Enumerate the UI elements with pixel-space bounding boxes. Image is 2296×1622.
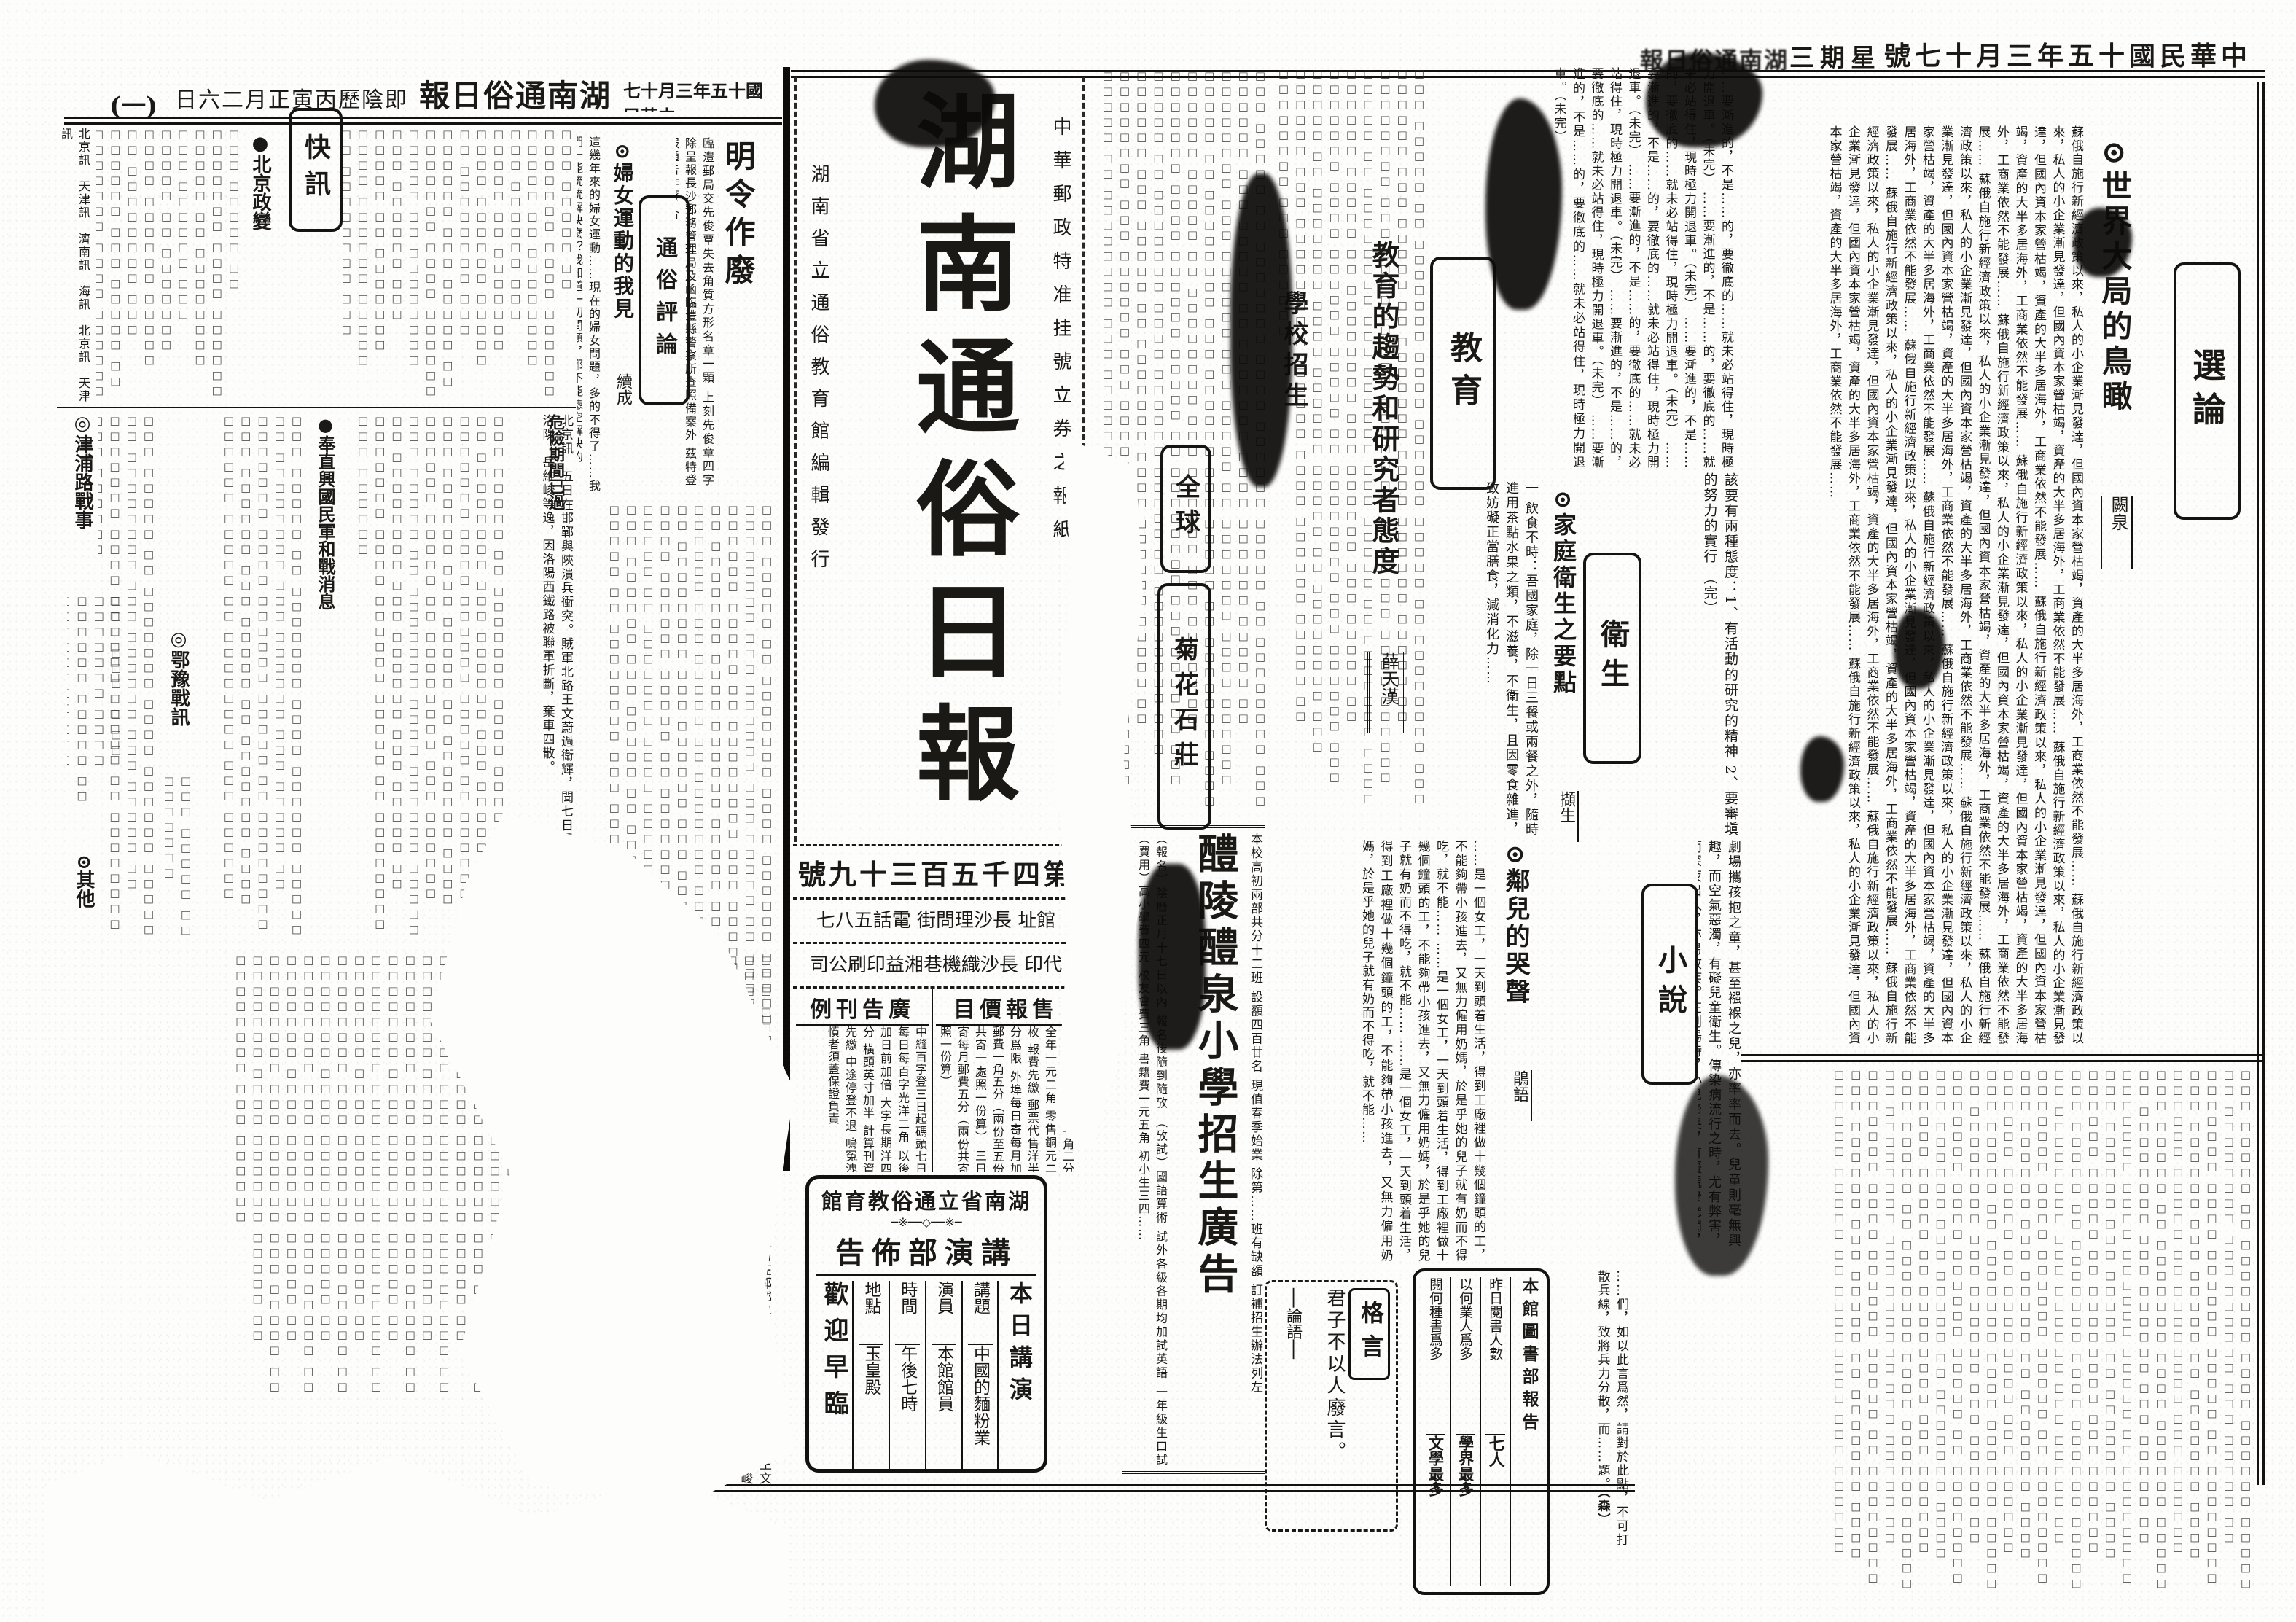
headline-fengzhi-guominjun: ●奉直興國民軍和戰消息 [308,414,338,640]
price-box: 目價報售 本埠每月每份光洋一角二分 全年一元二角 零售銅元二枚 報費先繳 郵票代… [932,989,1079,1172]
newspaper-scan-page: 號七十月三年五十國民華中 三期星 報日俗通南湖 中華郵政特准挂號立券之報紙 湖南… [0,0,2296,1622]
education-article-title: 教育的趨勢和研究者態度 [1360,241,1404,638]
masthead: 中華郵政特准挂號立券之報紙 湖南通俗日報 湖南省立通俗教育館編輯發行 [794,77,1085,842]
right-mid-rule [1741,1054,2265,1062]
left-page-top-rule [64,117,782,125]
education-article-attitudes: 該要有兩種態度：1、有活動的研究的精神 2、要審塡的努力的實行 （完） [1675,472,1741,837]
office-address-line: 七八五話電 街問理沙長 址館 [793,900,1079,944]
lecture-row-time: 時間 午後七時 [889,1281,925,1473]
maxim-title: 格言 [1348,1288,1390,1380]
right-header-date: 號七十月三年五十國民華中 [1884,35,2270,73]
bottom-right-degraded-text: □□□ □□□□□ □□ □□□□□□□ □□□□ □□□□□□ □□□□□ □… [1744,1068,2254,1604]
section-box-flash-news: 快訊 [289,108,343,232]
left-header-page-number: (一) [109,86,164,117]
headline-beijing-coup: ●北京政變 [245,133,274,264]
masthead-title: 湖南通俗日報 [878,87,1031,838]
section-box-fiction: 小說 [1641,884,1698,1085]
ad-rates-text: 中縫百字登三日起碼頭七日 每日每百字光洋二角 以後加日前加倍 大字長期洋四分 橫… [796,1026,929,1172]
lecture-session-label: 本日講演 [997,1281,1036,1473]
maxim-text: 君子不以人廢言。 [1304,1288,1348,1524]
ad-box-global: 全球 [1160,445,1211,573]
right-page-edge-rule [2257,82,2265,1485]
library-row-occupation: 以何業人爲多 學界最多 [1450,1277,1480,1586]
page-divider-bar [783,67,790,1171]
essay-author: 闕泉 [2101,496,2133,569]
right-header-weekday: 三期星 [1789,38,1891,74]
section-box-hygiene: 衛生 [1583,553,1641,764]
education-article-author: 薛天漢 [1367,652,1404,733]
left-mid-rule [57,407,576,408]
left-header-paper-name: 報日俗通南湖 [419,71,622,112]
decree-notice-title: 明令作廢 [718,140,760,322]
headline-others: ⊙其他 [67,854,98,927]
imprint-and-rates: 號九十三百五千四第 七八五話電 街問理沙長 址館 司公刷印益湘巷機織沙長 印代 … [793,844,1079,1172]
price-box-text: 本埠每月每份光洋一角二分 全年一元二角 零售銅元二枚 報費先繳 郵票代售洋半分爲… [936,1026,1076,1172]
left-top-datelines: 北京訊 天津訊 濟南訊 海訊 北京訊 天津訊 [57,128,92,403]
lecture-announcement-box: 館育教俗通立省南湖 ─※──◇──※─ 告佈部演講 本日講演 講題 中國的麵粉業… [805,1175,1047,1473]
lecture-org: 館育教俗通立省南湖 [816,1185,1036,1215]
news-degraded-b4: □□□ □□□□□ □□ □□□□□□□ □□□□ □□□□□□ □□□□□ □… [67,594,124,842]
ink-blob-school-ad [1139,864,1206,1050]
issue-number: 號九十三百五千四第 [793,846,1079,900]
lecture-dept-title: 告佈部演講 [816,1229,1036,1276]
masthead-publisher-note: 湖南省立通俗教育館編輯發行 [803,164,832,842]
essay-end-column: ……們，如以此言爲然，請對於此點，不可打散兵線，致將兵力分散，而……題。（森） [1557,1270,1630,1547]
left-header-date: 七十月三年五十國民華中 [623,77,773,112]
lecture-row-place: 地點 玉皇殿 [852,1281,889,1473]
library-report-box: 本館圖書部報告 昨日閱書人數 七人 以何業人爲多 學界最多 閱何種書爲多 文學最… [1413,1268,1550,1595]
hygiene-article-author: 擷生 [1550,791,1579,842]
headline-jinpu-railway-war: ◎津浦路戰事 [66,413,96,555]
maxim-source: ──論語── [1273,1288,1304,1524]
review-article-body: 這幾年來的婦女運動……現在的婦女問題，多的不得了……我們一能統統解決麼？我知道一… [577,136,602,493]
ad-rates-box: 例刊告廣 中縫百字登三日起碼頭七日 每日每百字光洋二角 以後加日前加倍 大字長期… [793,989,932,1172]
headline-e-yu-war-news: ◎鄂豫戰訊 [162,628,192,745]
news-degraded-b5: □□□ □□□□□ □□ □□□□□□□ □□□□ □□□□□□ □□□□□ □… [162,774,194,942]
maxim-box: 格言 君子不以人廢言。 ──論語── [1265,1280,1398,1532]
hygiene-article-body: 一 飲食不時：吾國家庭，除一日三餐或兩餐之外，隨時進用茶點水果之類，不滋養，不衛… [1487,481,1541,837]
lecture-ornament: ─※──◇──※─ [816,1215,1036,1229]
fiction-author: 鵑語 [1503,1070,1532,1121]
library-report-title: 本館圖書部報告 [1510,1277,1541,1586]
review-article-subtitle: 續成 [608,373,634,432]
ad-box-chrysanthemum-stone: 菊花石莊 [1157,583,1211,830]
library-row-readers: 昨日閱書人數 七人 [1480,1277,1510,1586]
lecture-row-speaker: 演員 本館館員 [925,1281,961,1473]
center-degraded-column-b: □□□ □□□□□ □□ □□□□□□□ □□□□ □□□□□□ □□□□□ □… [1272,67,1427,827]
left-top-degraded-a: □□□ □□□□□ □□ □□□□□□□ □□□□ □□□□□□ □□□□□ □… [96,128,242,403]
ink-blob-center-smear [1230,173,1292,487]
section-box-education: 教育 [1430,257,1496,490]
library-row-booktype: 閱何種書爲多 文學最多 [1421,1277,1450,1586]
fiction-title: ⊙鄰兒的哭聲 [1496,844,1534,1059]
school-ad-intro: 本校高初兩部共分十二班 設額四百廿名 現值春季始業 除第……班有缺額 訂補招生辦… [1236,833,1264,1467]
ad-rates-title: 例刊告廣 [796,991,929,1026]
printer-line: 司公刷印益湘巷機織沙長 印代 [793,944,1079,989]
section-box-popular-review: 通俗評論 [639,195,690,405]
fiction-body: ……是一個女工，一天到頭着生活，得到工廠裡做十幾個鐘頭的工，不能夠帶小孩進去，又… [1270,840,1487,1263]
essay-title-world-overview: ⊙世界大局的鳥瞰 [2090,140,2137,483]
left-top-degraded-b: □□□ □□□□□ □□ □□□□□□□ □□□□ □□□□□□ □□□□□ □… [343,128,574,403]
hygiene-article-title: ⊙家庭衛生之要點 [1542,490,1580,785]
price-box-title: 目價報售 [936,991,1076,1026]
section-box-selected-essays: 選論 [2174,262,2241,520]
news-degraded-b2: □□□ □□□□□ □□ □□□□□□□ □□□□ □□□□□□ □□□□□ □… [195,414,305,944]
essay-body: 蘇俄自施行新經濟政策以來，私人的小企業漸見發達，但國內資本家營枯竭，資產的大半多… [1746,125,2085,1045]
lecture-welcome: 歡迎早臨 [816,1281,852,1473]
lecture-row-topic: 講題 中國的麵粉業 [961,1281,998,1473]
ink-blob-header-right [1646,52,1762,147]
review-article-title: ⊙婦女運動的我見 [601,143,637,354]
